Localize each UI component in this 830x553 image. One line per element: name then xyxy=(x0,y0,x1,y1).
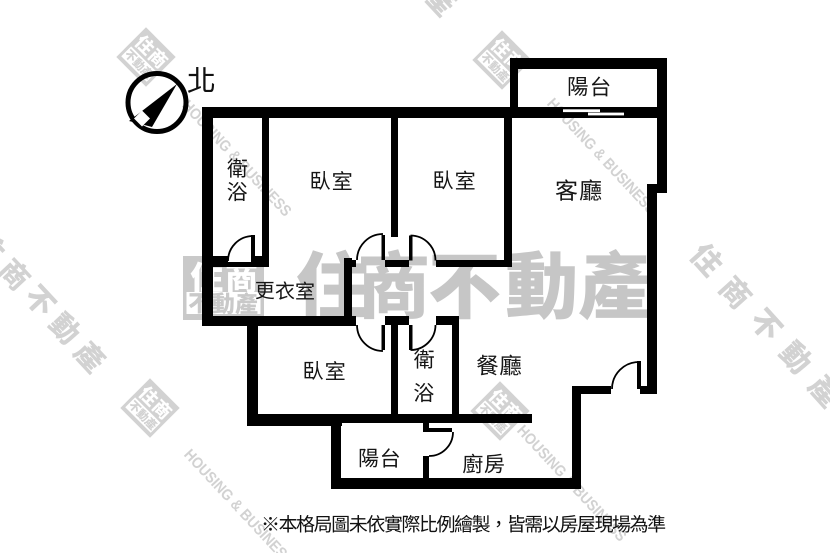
svg-text:HOUSING & BUSINESS: HOUSING & BUSINESS xyxy=(180,446,296,553)
